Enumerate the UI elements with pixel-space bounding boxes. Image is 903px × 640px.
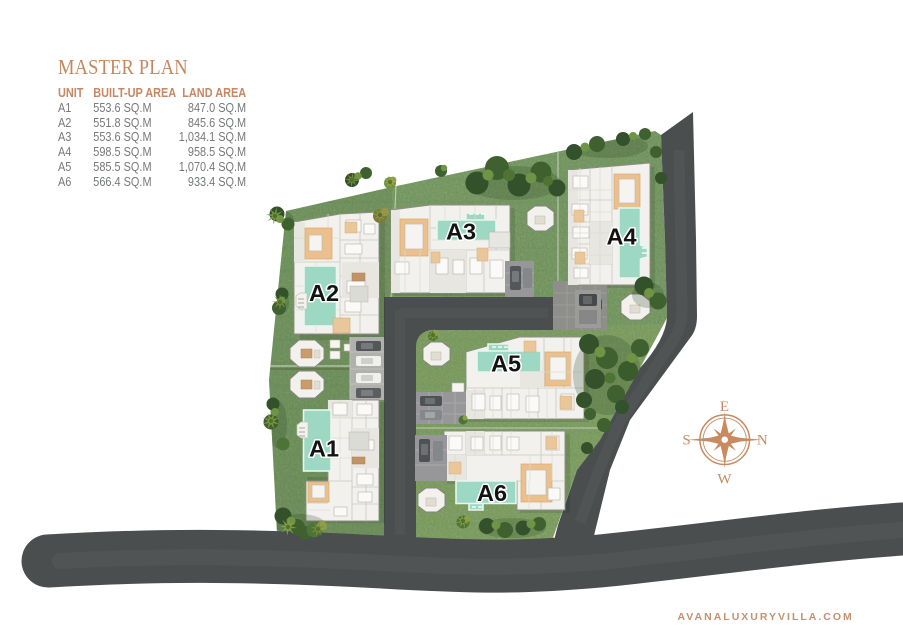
- svg-text:A3: A3: [446, 219, 476, 245]
- svg-text:S: S: [682, 433, 690, 449]
- svg-text:A6: A6: [477, 480, 507, 506]
- svg-text:A5: A5: [491, 351, 521, 377]
- svg-text:A1: A1: [309, 436, 339, 462]
- svg-text:E: E: [720, 399, 729, 415]
- svg-text:A2: A2: [309, 280, 339, 306]
- svg-text:W: W: [717, 472, 732, 488]
- svg-text:N: N: [757, 433, 768, 449]
- svg-text:A4: A4: [607, 224, 637, 250]
